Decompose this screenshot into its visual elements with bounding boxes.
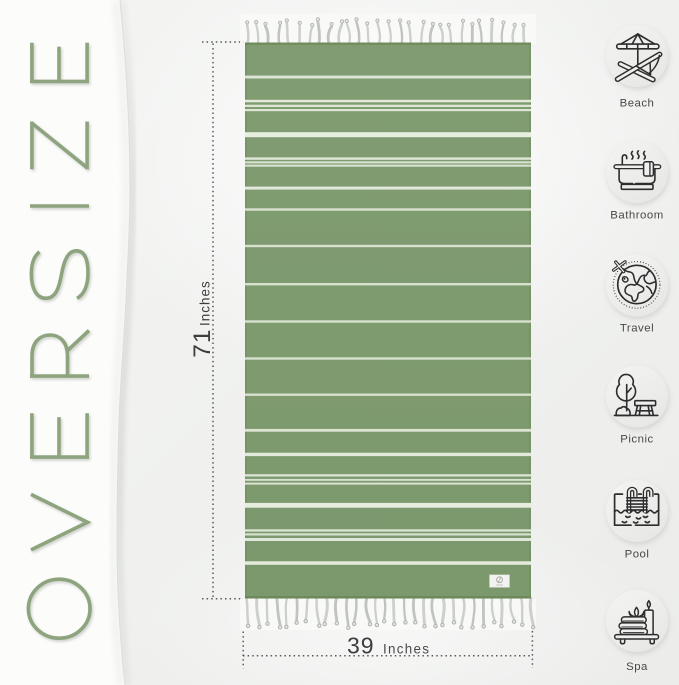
svg-text:Picnic: Picnic bbox=[620, 434, 653, 446]
svg-text:Inches: Inches bbox=[383, 641, 430, 656]
svg-text:Pool: Pool bbox=[625, 549, 650, 561]
svg-text:Beach: Beach bbox=[620, 98, 655, 110]
svg-text:Spa: Spa bbox=[626, 661, 648, 673]
svg-text:Bathroom: Bathroom bbox=[610, 210, 663, 222]
svg-text:39: 39 bbox=[347, 633, 375, 659]
svg-text:Travel: Travel bbox=[620, 322, 654, 334]
